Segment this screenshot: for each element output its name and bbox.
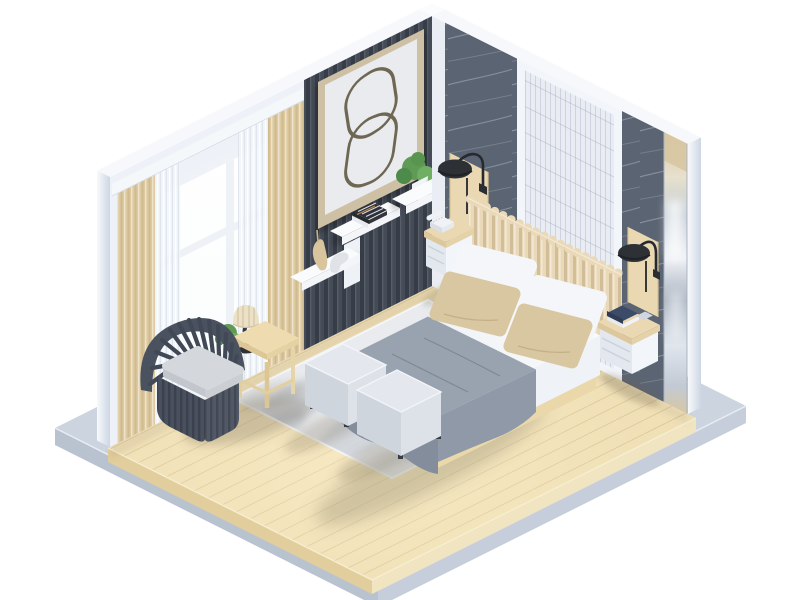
mirror-strip [664,132,687,414]
right-wall-end-column [688,138,701,415]
isometric-bedroom-render [0,0,800,600]
pillow-beige-left [436,278,514,330]
pillow-beige-right [510,310,586,362]
left-wall-end-column [97,171,110,448]
render-canvas [0,0,800,600]
